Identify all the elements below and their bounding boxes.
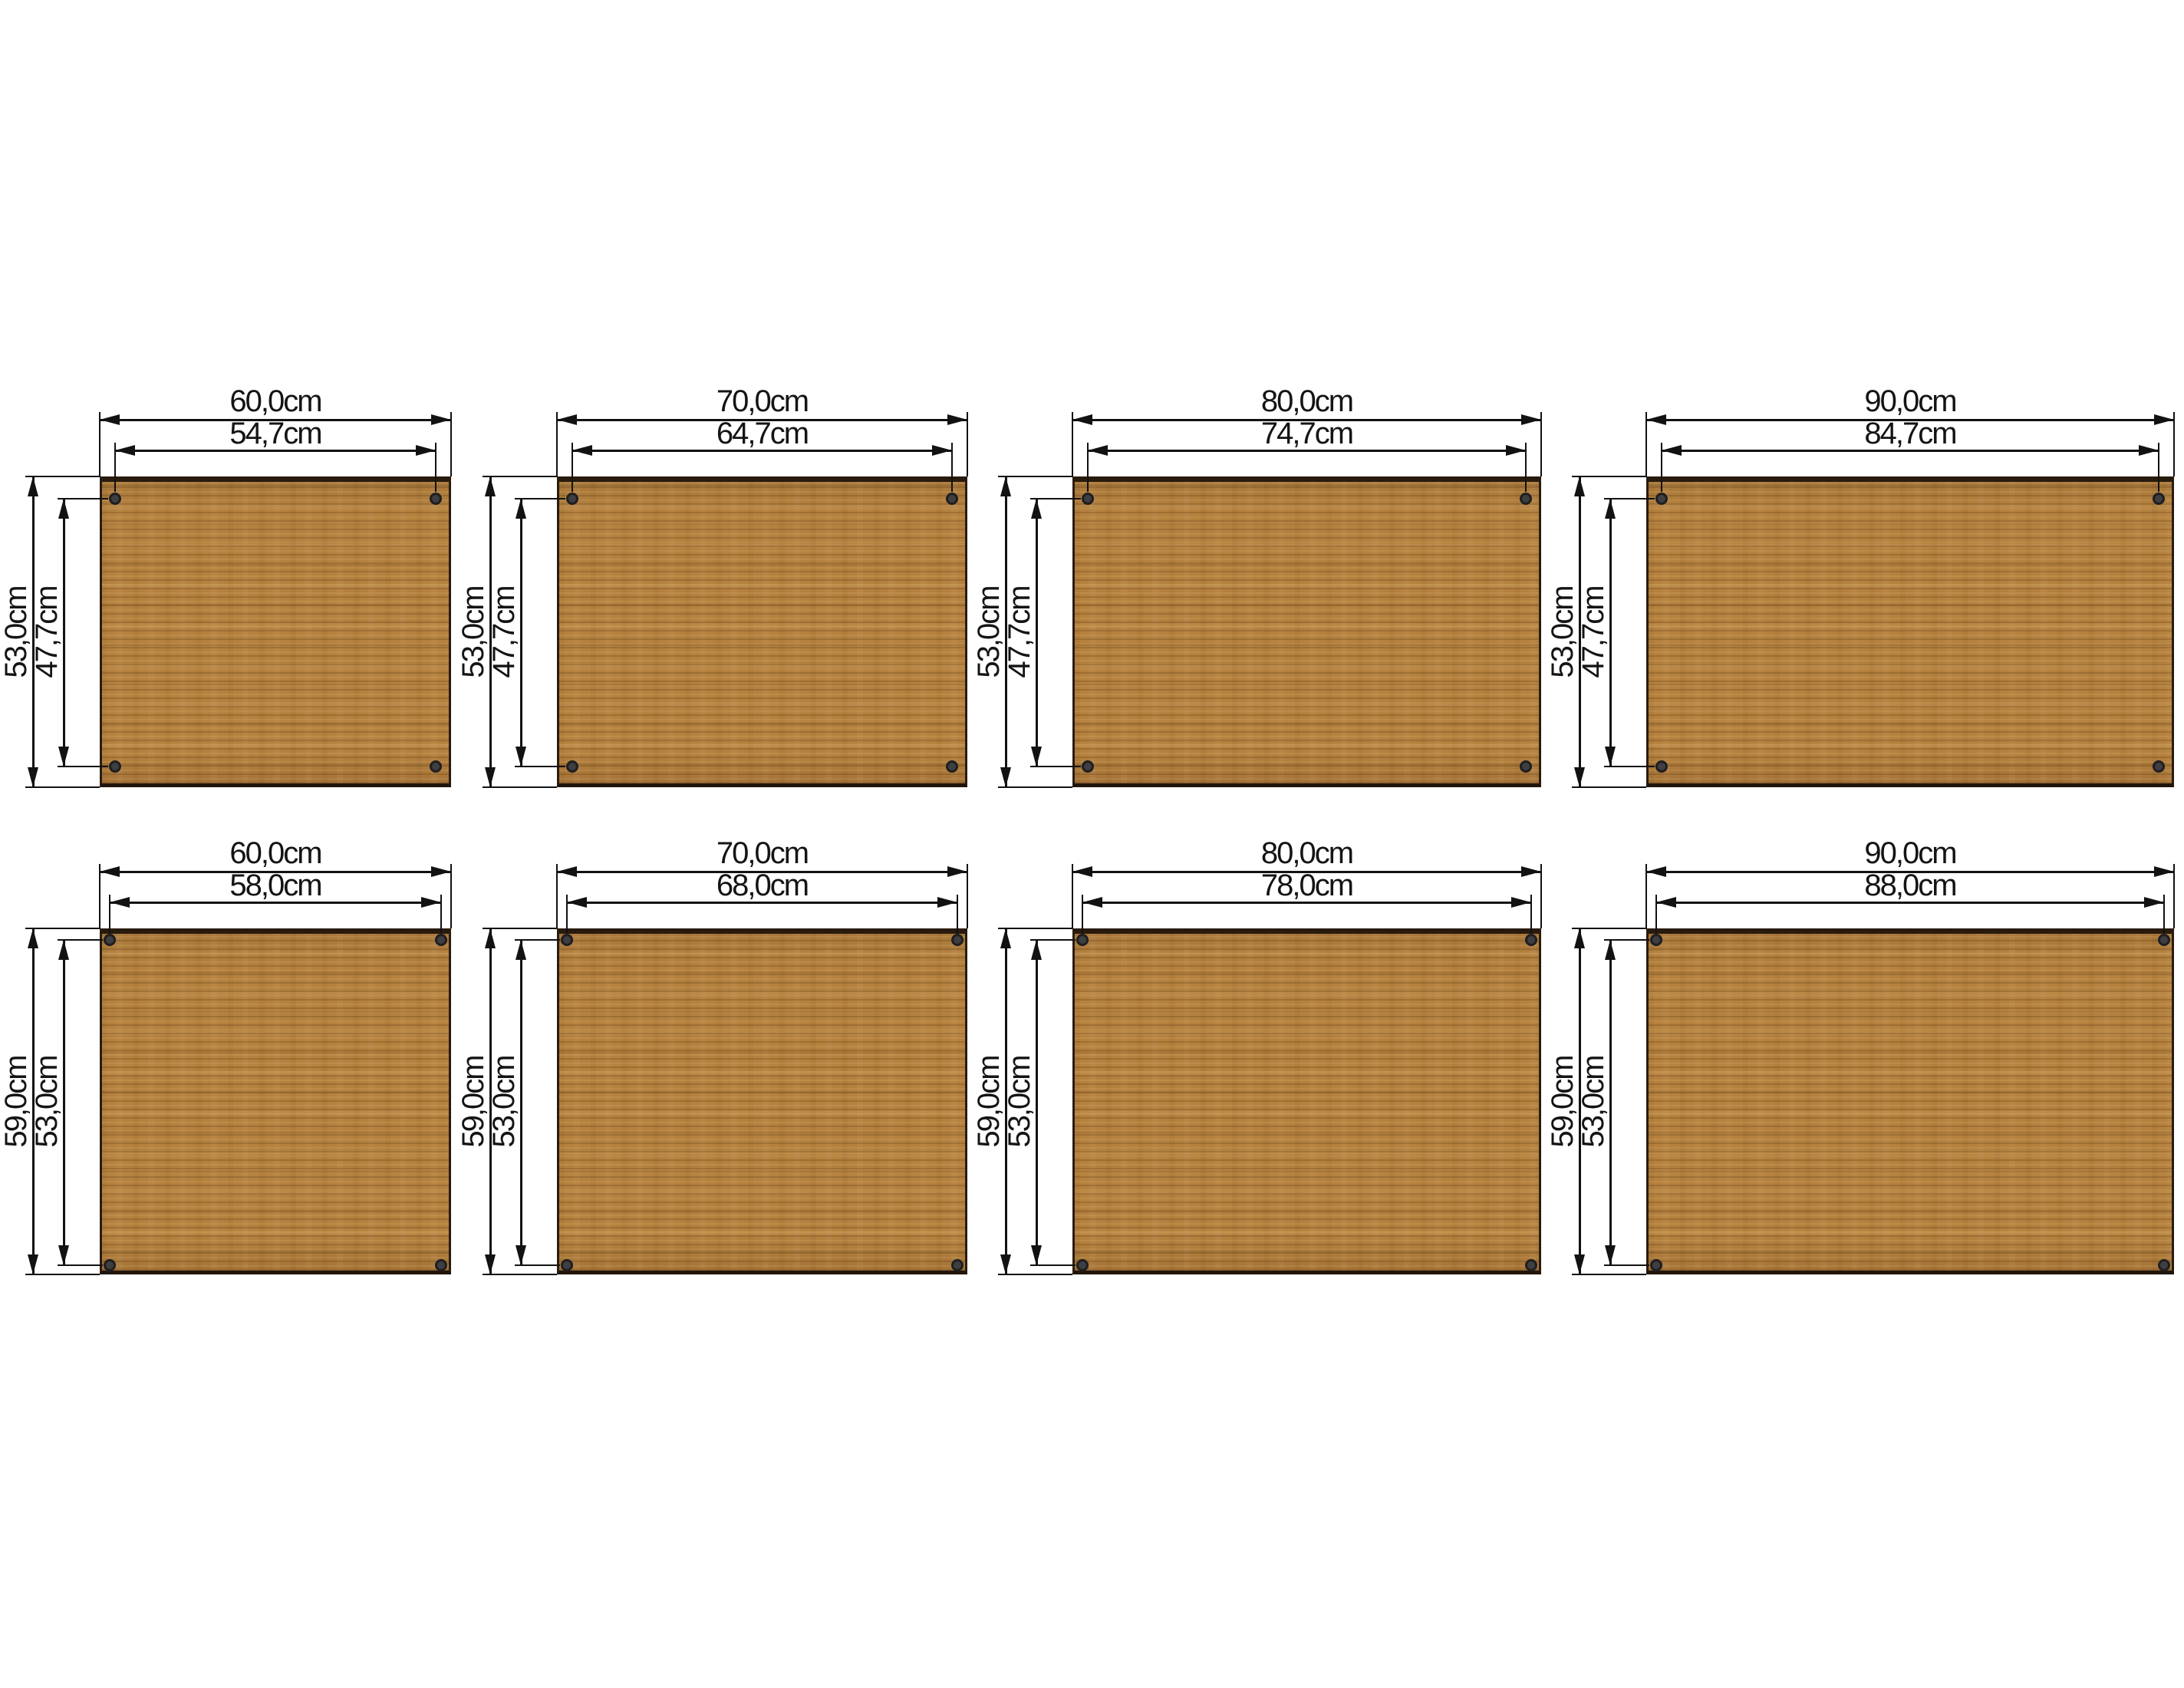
extension-line (1604, 766, 1655, 767)
wood-panel (1072, 928, 1541, 1274)
arrowhead-icon (1031, 1245, 1042, 1265)
arrowhead-icon (516, 747, 526, 767)
hole-spacing-width-label: 84,7cm (1864, 418, 1955, 449)
arrowhead-icon (28, 928, 38, 948)
outer-height-dimension-label: 59,0cm (1, 1056, 31, 1147)
outer-height-dimension-label: 53,0cm (458, 586, 489, 678)
extension-line (58, 939, 103, 941)
arrowhead-icon (1574, 476, 1585, 496)
arrowhead-icon (567, 897, 587, 908)
screw-hole-top-left (1076, 934, 1089, 946)
screw-hole-bottom-right (2153, 760, 2165, 773)
extension-line (1572, 476, 1646, 477)
outer-height-dimension-label: 53,0cm (973, 586, 1004, 678)
arrowhead-icon (58, 940, 69, 960)
arrowhead-icon (485, 476, 496, 496)
extension-line (1572, 786, 1646, 788)
outer-height-dimension-label: 59,0cm (973, 1056, 1004, 1147)
extension-line (951, 443, 953, 492)
arrowhead-icon (1506, 445, 1526, 456)
extension-line (483, 476, 557, 477)
extension-line (998, 1274, 1072, 1275)
arrowhead-icon (557, 414, 577, 425)
extension-line (556, 412, 558, 476)
screw-hole-bottom-right (1520, 760, 1532, 773)
extension-line (1572, 1274, 1646, 1275)
hole-spacing-height-label: 47,7cm (489, 586, 519, 678)
screw-hole-top-right (2158, 934, 2170, 946)
arrowhead-icon (110, 897, 130, 908)
wood-panel (100, 928, 451, 1274)
hole-spacing-width-label: 58,0cm (229, 870, 321, 901)
extension-line (25, 1274, 100, 1275)
screw-hole-top-right (435, 934, 447, 946)
arrowhead-icon (1000, 1254, 1011, 1274)
extension-line (1645, 864, 1647, 928)
screw-hole-bottom-right (435, 1259, 447, 1271)
arrowhead-icon (431, 866, 451, 877)
arrowhead-icon (1605, 747, 1616, 767)
hole-spacing-height-label: 53,0cm (1004, 1056, 1035, 1147)
arrowhead-icon (58, 1245, 69, 1265)
outer-width-dimension-label: 60,0cm (229, 386, 321, 417)
extension-line (1030, 766, 1081, 767)
hole-spacing-width-label: 74,7cm (1261, 418, 1352, 449)
extension-line (2173, 412, 2175, 476)
hole-spacing-width-label: 78,0cm (1261, 870, 1352, 901)
screw-hole-top-left (1650, 934, 1662, 946)
arrowhead-icon (2144, 897, 2164, 908)
hole-spacing-width-label: 64,7cm (716, 418, 808, 449)
screw-hole-top-left (1082, 493, 1094, 505)
screw-hole-top-right (946, 493, 958, 505)
arrowhead-icon (516, 499, 526, 519)
extension-line (2158, 443, 2159, 492)
extension-line (998, 786, 1072, 788)
screw-hole-bottom-left (1076, 1259, 1089, 1271)
outer-width-dimension-label: 80,0cm (1261, 838, 1352, 869)
wood-panel (1646, 928, 2174, 1274)
screw-hole-bottom-left (566, 760, 578, 773)
arrowhead-icon (1574, 767, 1585, 787)
hole-spacing-height-label: 47,7cm (1578, 586, 1609, 678)
extension-line (515, 766, 565, 767)
arrowhead-icon (485, 767, 496, 787)
extension-line (58, 498, 108, 499)
extension-line (1604, 1264, 1649, 1266)
arrowhead-icon (937, 897, 957, 908)
extension-line (967, 864, 968, 928)
screw-hole-top-right (1525, 934, 1537, 946)
arrowhead-icon (932, 445, 952, 456)
extension-line (114, 443, 116, 492)
wood-panel (1072, 476, 1541, 787)
extension-line (58, 1264, 103, 1266)
arrowhead-icon (1000, 476, 1011, 496)
extension-line (572, 443, 573, 492)
arrowhead-icon (1605, 499, 1616, 519)
arrowhead-icon (947, 414, 967, 425)
extension-line (1087, 443, 1089, 492)
outer-height-dimension-label: 53,0cm (1547, 586, 1578, 678)
arrowhead-icon (1574, 1254, 1585, 1274)
arrowhead-icon (1511, 897, 1531, 908)
extension-line (1604, 498, 1655, 499)
arrowhead-icon (1646, 866, 1666, 877)
screw-hole-bottom-left (1082, 760, 1094, 773)
extension-line (99, 864, 100, 928)
outer-width-dimension-label: 60,0cm (229, 838, 321, 869)
extension-line (483, 786, 557, 788)
arrowhead-icon (28, 1254, 38, 1274)
extension-line (1530, 895, 1532, 933)
arrowhead-icon (1072, 866, 1092, 877)
arrowhead-icon (2154, 414, 2174, 425)
hole-spacing-width-label: 88,0cm (1864, 870, 1955, 901)
arrowhead-icon (1088, 445, 1108, 456)
arrowhead-icon (100, 414, 120, 425)
extension-line (450, 412, 452, 476)
outer-width-dimension-label: 90,0cm (1864, 838, 1955, 869)
arrowhead-icon (1646, 414, 1666, 425)
extension-line (440, 895, 442, 933)
arrowhead-icon (28, 767, 38, 787)
arrowhead-icon (2154, 866, 2174, 877)
hole-spacing-height-label: 53,0cm (31, 1056, 62, 1147)
extension-line (1540, 864, 1542, 928)
screw-hole-bottom-right (946, 760, 958, 773)
wood-panel (557, 476, 967, 787)
extension-line (99, 412, 100, 476)
extension-line (2173, 864, 2175, 928)
screw-hole-top-right (2153, 493, 2165, 505)
wood-panel (557, 928, 967, 1274)
arrowhead-icon (58, 499, 69, 519)
extension-line (1655, 895, 1657, 933)
arrowhead-icon (100, 866, 120, 877)
arrowhead-icon (1662, 445, 1682, 456)
screw-hole-top-right (951, 934, 964, 946)
screw-hole-bottom-left (1655, 760, 1668, 773)
extension-line (25, 786, 100, 788)
extension-line (515, 1264, 560, 1266)
extension-line (515, 498, 565, 499)
arrowhead-icon (1000, 928, 1011, 948)
screw-hole-bottom-left (109, 760, 121, 773)
extension-line (1572, 928, 1646, 929)
screw-hole-bottom-right (430, 760, 442, 773)
extension-line (483, 1274, 557, 1275)
arrowhead-icon (516, 1245, 526, 1265)
extension-line (450, 864, 452, 928)
arrowhead-icon (2139, 445, 2159, 456)
arrowhead-icon (1000, 767, 1011, 787)
extension-line (967, 412, 968, 476)
screw-hole-top-left (566, 493, 578, 505)
extension-line (957, 895, 958, 933)
arrowhead-icon (421, 897, 441, 908)
screw-hole-top-left (1655, 493, 1668, 505)
screw-hole-bottom-right (2158, 1259, 2170, 1271)
outer-height-dimension-label: 59,0cm (458, 1056, 489, 1147)
wood-panel (1646, 476, 2174, 787)
screw-hole-bottom-left (104, 1259, 116, 1271)
extension-line (109, 895, 110, 933)
screw-hole-top-right (430, 493, 442, 505)
extension-line (1525, 443, 1527, 492)
screw-hole-top-left (109, 493, 121, 505)
hole-spacing-height-label: 53,0cm (1578, 1056, 1609, 1147)
outer-height-dimension-label: 59,0cm (1547, 1056, 1578, 1147)
arrowhead-icon (485, 928, 496, 948)
extension-line (1030, 498, 1081, 499)
wood-panel (100, 476, 451, 787)
arrowhead-icon (58, 747, 69, 767)
hole-spacing-width-label: 68,0cm (716, 870, 808, 901)
screw-hole-top-left (104, 934, 116, 946)
arrowhead-icon (1072, 414, 1092, 425)
extension-line (1645, 412, 1647, 476)
extension-line (1030, 1264, 1076, 1266)
arrowhead-icon (1605, 940, 1616, 960)
outer-height-dimension-label: 53,0cm (1, 586, 31, 678)
extension-line (25, 928, 100, 929)
arrowhead-icon (485, 1254, 496, 1274)
arrowhead-icon (1031, 940, 1042, 960)
extension-line (515, 939, 560, 941)
screw-hole-bottom-right (951, 1259, 964, 1271)
arrowhead-icon (557, 866, 577, 877)
screw-hole-bottom-left (561, 1259, 573, 1271)
hole-spacing-height-label: 53,0cm (489, 1056, 519, 1147)
extension-line (1540, 412, 1542, 476)
extension-line (1072, 412, 1073, 476)
extension-line (435, 443, 436, 492)
extension-line (1604, 939, 1649, 941)
extension-line (1072, 864, 1073, 928)
outer-width-dimension-label: 90,0cm (1864, 386, 1955, 417)
hole-spacing-width-label: 54,7cm (229, 418, 321, 449)
extension-line (998, 476, 1072, 477)
outer-width-dimension-label: 70,0cm (716, 838, 808, 869)
arrowhead-icon (572, 445, 592, 456)
arrowhead-icon (115, 445, 135, 456)
extension-line (483, 928, 557, 929)
hole-spacing-height-label: 47,7cm (31, 586, 62, 678)
arrowhead-icon (1031, 499, 1042, 519)
extension-line (998, 928, 1072, 929)
outer-width-dimension-label: 80,0cm (1261, 386, 1352, 417)
arrowhead-icon (1605, 1245, 1616, 1265)
extension-line (25, 476, 100, 477)
arrowhead-icon (28, 476, 38, 496)
arrowhead-icon (1574, 928, 1585, 948)
arrowhead-icon (1521, 866, 1541, 877)
extension-line (2163, 895, 2165, 933)
diagram-canvas: 60,0cm 54,7cm 53,0cm 47,7cm 70,0cm 64,7c… (0, 0, 2184, 1688)
screw-hole-top-left (561, 934, 573, 946)
screw-hole-bottom-right (1525, 1259, 1537, 1271)
arrowhead-icon (1082, 897, 1102, 908)
arrowhead-icon (516, 940, 526, 960)
outer-width-dimension-label: 70,0cm (716, 386, 808, 417)
extension-line (556, 864, 558, 928)
screw-hole-bottom-left (1650, 1259, 1662, 1271)
extension-line (58, 766, 108, 767)
arrowhead-icon (1031, 747, 1042, 767)
extension-line (1030, 939, 1076, 941)
arrowhead-icon (416, 445, 436, 456)
arrowhead-icon (431, 414, 451, 425)
extension-line (1082, 895, 1083, 933)
arrowhead-icon (1656, 897, 1676, 908)
hole-spacing-height-label: 47,7cm (1004, 586, 1035, 678)
extension-line (566, 895, 568, 933)
extension-line (1661, 443, 1662, 492)
screw-hole-top-right (1520, 493, 1532, 505)
arrowhead-icon (947, 866, 967, 877)
arrowhead-icon (1521, 414, 1541, 425)
